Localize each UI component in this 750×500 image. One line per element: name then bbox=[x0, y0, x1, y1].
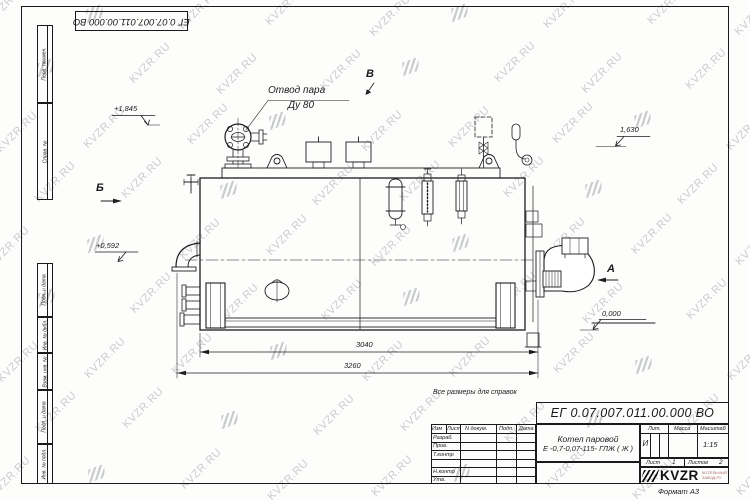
titleblock-logo-cell: KVZR КОТЕЛЬНЫЙ ЗАВОД.РУ bbox=[640, 467, 729, 484]
sheets-label: Листов bbox=[688, 460, 708, 466]
elevation-1845: +1,845 bbox=[114, 104, 137, 113]
sheets-value: 2 bbox=[719, 459, 723, 466]
product-name-line2: Е -0,7-0,07-115- ГЛЖ ( Ж ) bbox=[543, 444, 633, 453]
row-nkontr: Н.контр bbox=[433, 469, 455, 475]
row-tkontr: Т.контр bbox=[433, 452, 454, 458]
row-prov: Пров. bbox=[433, 443, 448, 449]
col-list: Лист bbox=[447, 426, 461, 432]
kvzr-logo-sub2: ЗАВОД.РУ bbox=[702, 476, 727, 481]
product-name-line1: Котел паровой bbox=[558, 434, 619, 444]
col-data: Дата bbox=[519, 426, 534, 432]
steam-outlet-dn-label: Ду 80 bbox=[288, 100, 314, 111]
format-label: Формат А3 bbox=[658, 487, 699, 496]
kvzr-logo-icon bbox=[640, 470, 659, 482]
sheet-label: Лист bbox=[646, 460, 660, 466]
col-docnum: N докум. bbox=[465, 426, 487, 432]
elevation-0000: 0,000 bbox=[602, 309, 621, 318]
reference-note: Все размеры для справок bbox=[433, 389, 517, 396]
elevation-1630: 1,630 bbox=[620, 125, 639, 134]
scale-value: 1:15 bbox=[703, 440, 718, 449]
titleblock-designation: ЕГ 0.07.007.011.00.000 ВО bbox=[551, 406, 715, 420]
scale-header: Масштаб bbox=[700, 426, 726, 432]
dimension-3260: 3260 bbox=[344, 361, 361, 370]
drawing-sheet: KVZR.RUKVZR.RUKVZR.RUKVZR.RUKVZR.RUKVZR.… bbox=[0, 0, 750, 500]
lit-header: Лит. bbox=[648, 426, 661, 432]
titleblock-designation-cell: ЕГ 0.07.007.011.00.000 ВО bbox=[536, 402, 729, 424]
col-izm: Изм bbox=[432, 426, 442, 432]
elevation-0592: +0,592 bbox=[96, 241, 119, 250]
view-label-a: А bbox=[607, 263, 615, 275]
sheet-value: 1 bbox=[672, 459, 676, 466]
titleblock-name-cell: Котел паровой Е -0,7-0,07-115- ГЛЖ ( Ж ) bbox=[536, 424, 640, 462]
steam-outlet-label: Отвод пара bbox=[268, 85, 325, 96]
row-utv: Утв. bbox=[433, 477, 446, 483]
titleblock-org-cell bbox=[536, 462, 640, 484]
col-podp: Подп. bbox=[499, 426, 514, 432]
dimension-3040: 3040 bbox=[356, 340, 373, 349]
lit-value: И bbox=[643, 439, 649, 448]
mass-header: Масса bbox=[674, 426, 690, 432]
view-label-b: Б bbox=[96, 182, 104, 194]
view-label-v: В bbox=[366, 68, 374, 80]
row-razrab: Разраб. bbox=[433, 435, 453, 441]
kvzr-logo-text: KVZR bbox=[660, 468, 699, 483]
